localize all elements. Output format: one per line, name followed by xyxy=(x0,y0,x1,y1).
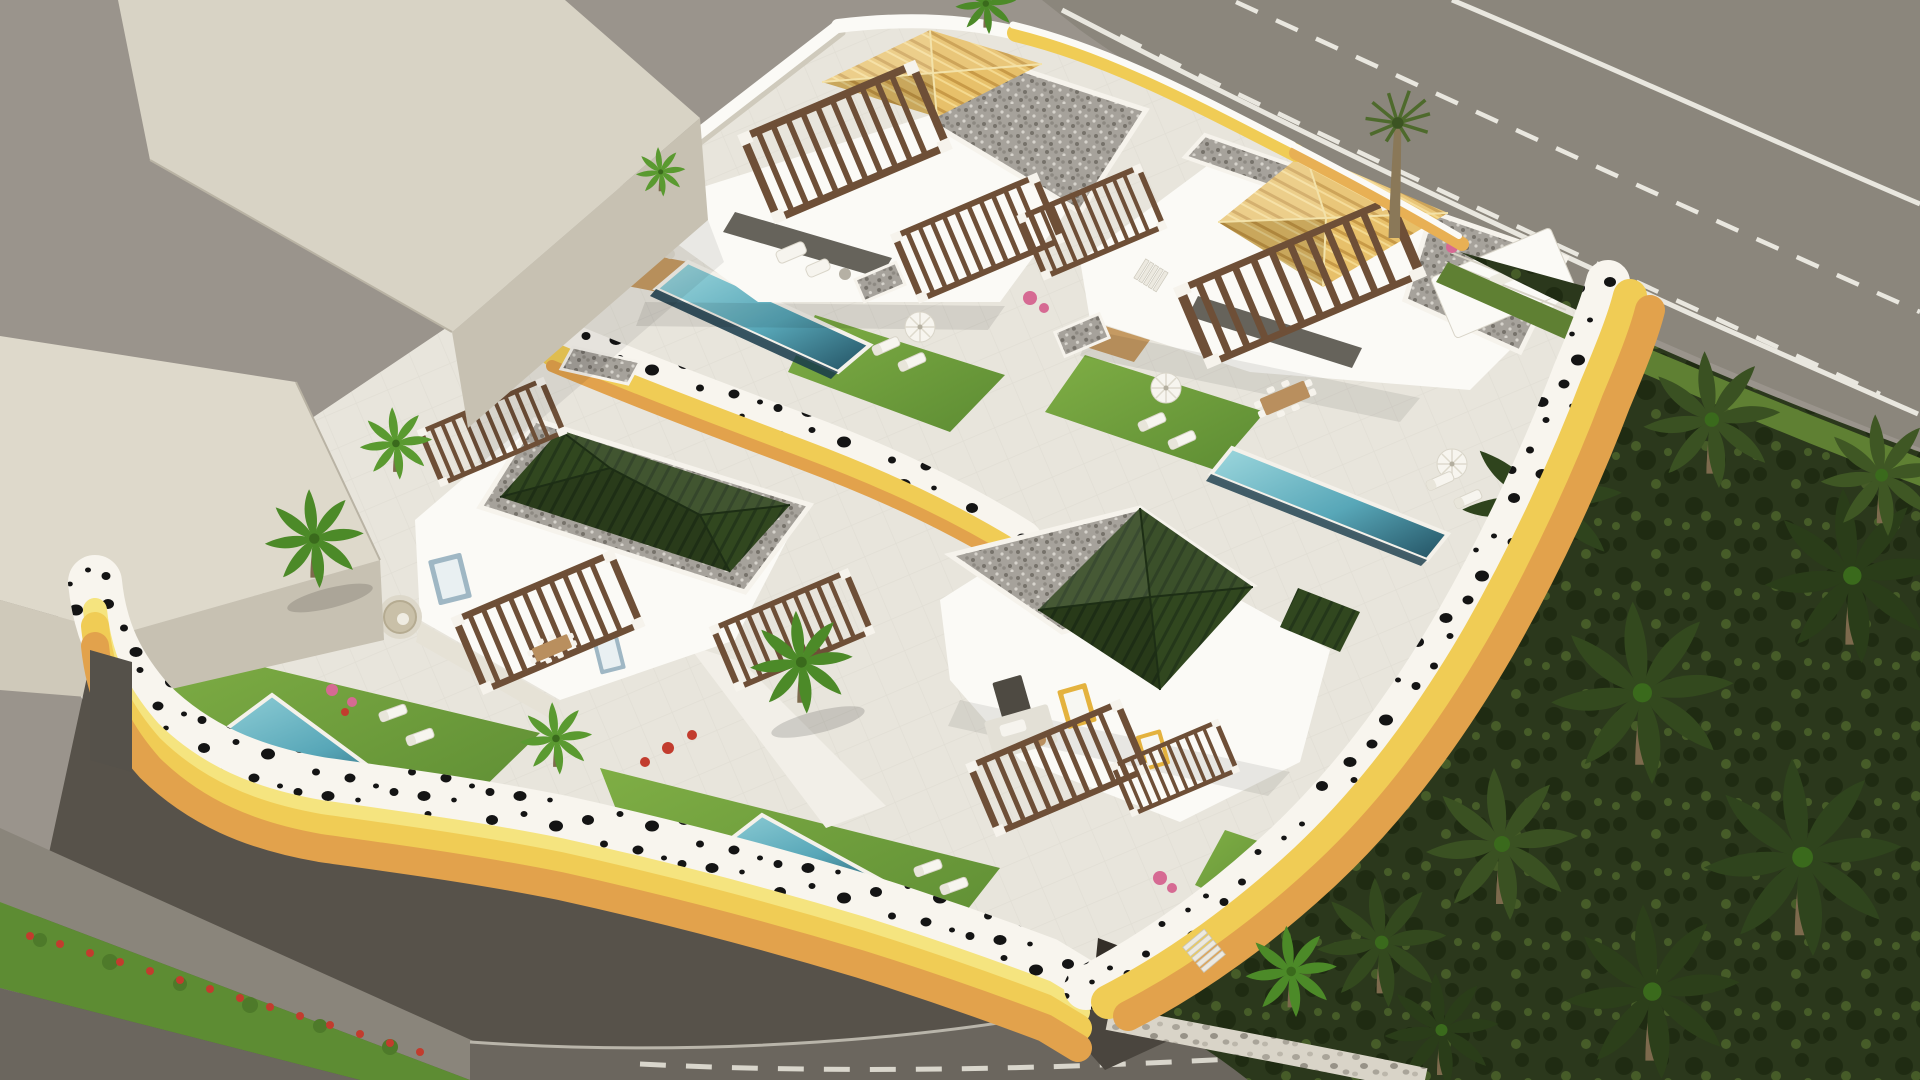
service-door xyxy=(90,650,132,772)
parasol-villa-1 xyxy=(905,312,935,342)
render-canvas xyxy=(0,0,1920,1080)
aerial-render xyxy=(0,0,1920,1080)
sunken-lounge xyxy=(378,595,422,639)
parasol-villa-2 xyxy=(1151,373,1181,403)
villa-1-shadow xyxy=(636,302,1005,330)
